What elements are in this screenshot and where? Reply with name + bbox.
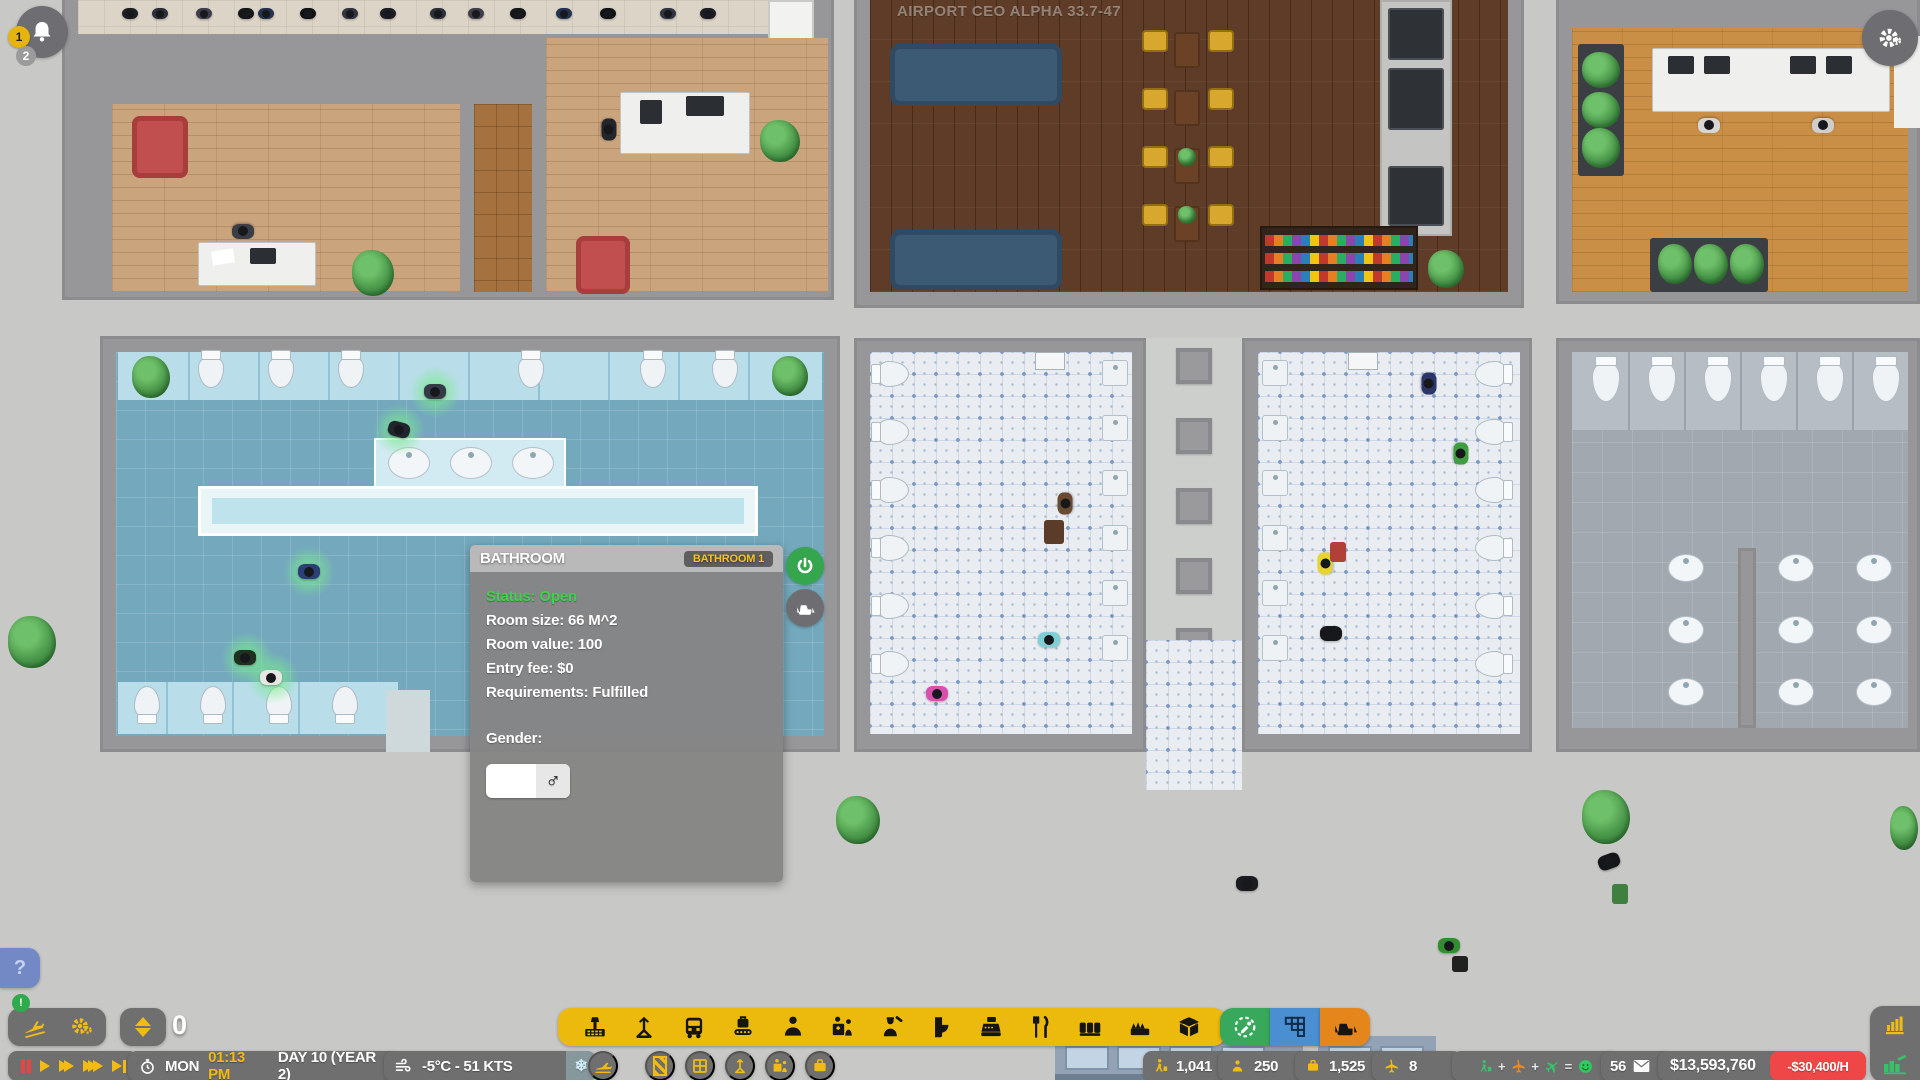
monitor: [1704, 56, 1730, 74]
room-demolish-button[interactable]: [786, 589, 824, 627]
up-arrow-icon: [135, 1017, 151, 1026]
bathroom-2-floor[interactable]: [870, 352, 1132, 734]
chair: [1208, 204, 1234, 226]
plant: [760, 120, 800, 162]
bell-icon: [30, 20, 54, 44]
person: [660, 8, 676, 19]
plant: [352, 250, 394, 296]
shops-tool[interactable]: [968, 1008, 1014, 1046]
person: [1320, 626, 1342, 641]
airport-building-tool[interactable]: [572, 1008, 618, 1046]
aircraft-count-pill[interactable]: 8: [1372, 1051, 1462, 1080]
toilet: [1475, 419, 1507, 445]
monitor: [1790, 56, 1816, 74]
build-alert-badge: !: [12, 994, 30, 1012]
chair: [1208, 146, 1234, 168]
baggage-view-button[interactable]: [805, 1051, 835, 1080]
chair: [1142, 30, 1168, 52]
panel-title: BATHROOM: [480, 550, 565, 567]
plant: [8, 616, 56, 668]
sink: [1668, 554, 1704, 582]
checkin-view-button[interactable]: [765, 1051, 795, 1080]
sink: [1262, 360, 1288, 386]
gender-select-value: [486, 764, 536, 798]
equals-sign: =: [1565, 1059, 1572, 1074]
trough-water: [212, 498, 744, 524]
stall-divider: [232, 682, 234, 734]
bus-transit-tool[interactable]: [671, 1008, 717, 1046]
plant: [1178, 206, 1196, 224]
plant: [1582, 52, 1620, 88]
pillar: [1176, 348, 1212, 384]
pillar: [1176, 418, 1212, 454]
monitor: [640, 100, 662, 124]
food-tool[interactable]: [1018, 1008, 1064, 1046]
kitchen-machine: [1388, 166, 1444, 226]
person: [510, 8, 526, 19]
fast-button[interactable]: [59, 1060, 74, 1072]
baggage-handling-tool[interactable]: [720, 1008, 766, 1046]
pillar: [1176, 558, 1212, 594]
stall-wall: [1738, 548, 1756, 728]
help-button[interactable]: ?: [0, 948, 40, 988]
stall-divider: [1628, 352, 1630, 430]
speed-controls: [8, 1051, 138, 1080]
requirements: Requirements: Fulfilled: [486, 681, 767, 705]
zones-view-button[interactable]: [645, 1051, 675, 1080]
plant: [132, 356, 170, 398]
plant: [1428, 250, 1464, 288]
sink: [1102, 360, 1128, 386]
sink: [1262, 525, 1288, 551]
airport-stats-icon: [1882, 1051, 1908, 1075]
luggage: [1452, 956, 1468, 972]
sink: [1102, 525, 1128, 551]
power-icon: [795, 556, 815, 576]
security-tool[interactable]: [869, 1008, 915, 1046]
gears-icon: [70, 1015, 94, 1039]
demolish-button[interactable]: [1320, 1008, 1370, 1046]
person: [424, 384, 446, 399]
person: [298, 564, 320, 579]
sink: [1102, 635, 1128, 661]
sink: [1102, 580, 1128, 606]
bar-chart-icon: [1883, 1013, 1907, 1037]
sink: [1856, 616, 1892, 644]
sink: [1668, 616, 1704, 644]
stall-divider: [188, 352, 190, 400]
person: [260, 670, 282, 685]
chair: [1142, 204, 1168, 226]
person: [926, 686, 948, 701]
luggage: [1044, 520, 1064, 544]
pause-button[interactable]: [21, 1059, 31, 1073]
version-watermark: AIRPORT CEO ALPHA 33.7-47: [897, 3, 1121, 20]
sink: [1262, 580, 1288, 606]
sink: [1778, 678, 1814, 706]
plant: [1890, 806, 1918, 850]
plant: [1730, 244, 1764, 284]
gear-icon: [1877, 25, 1903, 51]
toilet: [1475, 651, 1507, 677]
armchair: [132, 116, 188, 178]
stall-divider: [678, 352, 680, 400]
reports-pill[interactable]: [1870, 1006, 1920, 1080]
person: [152, 8, 168, 19]
hand-dryer: [1348, 352, 1378, 370]
skip-button[interactable]: [112, 1060, 126, 1073]
person: [1058, 493, 1073, 515]
down-arrow-icon: [135, 1028, 151, 1037]
check-in-desk-icon: [771, 1057, 789, 1075]
sink: [1778, 616, 1814, 644]
plant: [836, 796, 880, 844]
stall-divider: [468, 352, 470, 400]
bulldozer-icon: [1332, 1014, 1358, 1040]
person: [556, 8, 572, 19]
infrastructure-view-button[interactable]: [725, 1051, 755, 1080]
seating-tool[interactable]: [1067, 1008, 1113, 1046]
stall-divider: [1684, 352, 1686, 430]
pillar: [1176, 488, 1212, 524]
person: [380, 8, 396, 19]
luggage: [1612, 884, 1628, 904]
takeoff-plane-icon: [594, 1057, 612, 1075]
stopwatch-icon: [139, 1058, 156, 1075]
plant: [1582, 92, 1620, 128]
green-plane-icon: [1544, 1058, 1560, 1074]
male-symbol-icon: ♂: [536, 764, 570, 798]
stall-divider: [298, 682, 300, 734]
stall-divider: [748, 352, 750, 400]
mast-icon: [731, 1057, 749, 1075]
stall-divider: [1796, 352, 1798, 430]
luggage: [1330, 542, 1346, 562]
picker-icon: [1232, 1014, 1258, 1040]
person: [232, 224, 254, 239]
settings-button[interactable]: [1862, 10, 1918, 66]
clock-pill[interactable]: MON 01:13 PM DAY 10 (YEAR 2): [128, 1051, 400, 1080]
plane-icon: [1383, 1058, 1399, 1074]
stall-divider: [608, 352, 610, 400]
toilet: [134, 686, 160, 718]
plant: [1658, 244, 1692, 284]
staff-tool[interactable]: [770, 1008, 816, 1046]
clock-date: DAY 10 (YEAR 2): [278, 1049, 389, 1080]
kitchen-machine: [1388, 8, 1444, 60]
notification-badge-priority[interactable]: 1: [8, 26, 30, 48]
person: [1454, 443, 1469, 465]
happy-face-icon: [1577, 1058, 1594, 1075]
plant: [1582, 128, 1620, 168]
chair: [1208, 30, 1234, 52]
plane-icon: [21, 1015, 45, 1039]
toilet: [200, 686, 226, 718]
airport-map[interactable]: [0, 0, 1920, 1080]
stall-divider: [328, 352, 330, 400]
plant: [1582, 790, 1630, 844]
satisfaction-pill[interactable]: + + =: [1452, 1051, 1620, 1080]
room-inspect-panel: BATHROOM BATHROOM 1 Status: Open Room si…: [470, 545, 783, 882]
toilet: [1475, 593, 1507, 619]
sink: [1668, 678, 1704, 706]
person: [342, 8, 358, 19]
tiles-icon: [1282, 1014, 1308, 1040]
shelf-products: [1265, 253, 1413, 264]
weather-reading: -5°C - 51 KTS: [422, 1058, 512, 1075]
baggage-count: 1,525: [1329, 1058, 1365, 1075]
armchair: [576, 236, 630, 294]
sink: [1856, 554, 1892, 582]
person: [196, 8, 212, 19]
toilet: [1475, 361, 1507, 387]
weather-pill[interactable]: -5°C - 51 KTS ❄: [384, 1051, 596, 1080]
entry-fee: Entry fee: $0: [486, 657, 767, 681]
panel-title-bar[interactable]: BATHROOM BATHROOM 1: [470, 545, 783, 572]
weekday: MON: [165, 1058, 199, 1075]
stall-divider: [398, 352, 400, 400]
wind-icon: [394, 1056, 414, 1076]
room-status: Status: Open: [486, 585, 767, 609]
door-gap: [386, 690, 430, 752]
plant: [1694, 244, 1728, 284]
departures-button[interactable]: [588, 1051, 618, 1080]
plant: [772, 356, 808, 396]
rooms-view-button[interactable]: [685, 1051, 715, 1080]
plus-sign: +: [1531, 1059, 1538, 1074]
table: [1174, 32, 1200, 68]
table: [1174, 90, 1200, 126]
person: [300, 8, 316, 19]
monitor: [686, 96, 724, 116]
stall-divider: [1740, 352, 1742, 430]
monitor: [1668, 56, 1694, 74]
sink: [1262, 635, 1288, 661]
room-size: Room size: 66 M^2: [486, 609, 767, 633]
person: [1438, 938, 1460, 953]
plant: [1178, 148, 1196, 166]
person: [468, 8, 484, 19]
sofa: [890, 230, 1062, 290]
play-button[interactable]: [40, 1060, 50, 1072]
panel-body: Status: Open Room size: 66 M^2 Room valu…: [470, 572, 783, 882]
plus-sign: +: [1498, 1059, 1505, 1074]
floor-level-stepper[interactable]: [120, 1008, 166, 1046]
stall-divider: [166, 682, 168, 734]
kitchen-machine: [1388, 68, 1444, 130]
corridor-exit-tiles: [1146, 640, 1242, 790]
gender-select[interactable]: ♂: [486, 764, 570, 798]
finance-pill[interactable]: $13,593,760 -$30,400/H: [1658, 1051, 1866, 1080]
person: [430, 8, 446, 19]
sink: [1778, 554, 1814, 582]
sofa: [890, 44, 1062, 106]
sink: [450, 447, 492, 479]
person: [234, 650, 256, 665]
person: [1236, 876, 1258, 891]
hand-dryer: [1035, 352, 1065, 370]
flight-planner-pill[interactable]: [8, 1008, 106, 1046]
check-in-desk-tool[interactable]: [819, 1008, 865, 1046]
suitcase-icon: [811, 1057, 829, 1075]
clock-time: 01:13 PM: [208, 1049, 269, 1080]
orange-plane-icon: [1510, 1058, 1526, 1074]
green-passenger-icon: [1478, 1059, 1493, 1074]
office-corridor[interactable]: [474, 104, 532, 292]
person: [1698, 118, 1720, 133]
envelope-icon: [1633, 1059, 1650, 1073]
floor-tiles-button[interactable]: [1270, 1008, 1320, 1046]
hourly-rate-badge: -$30,400/H: [1770, 1051, 1866, 1080]
chair: [1142, 146, 1168, 168]
person: [258, 8, 274, 19]
sink: [1102, 415, 1128, 441]
kiosk-window: [1065, 1046, 1109, 1070]
notification-badge-count[interactable]: 2: [16, 46, 36, 66]
delivery-box-tool[interactable]: [1166, 1008, 1212, 1046]
sink: [1102, 470, 1128, 496]
toilet: [1475, 535, 1507, 561]
person: [1812, 118, 1834, 133]
panel-spacer: [486, 798, 767, 866]
chair: [1208, 88, 1234, 110]
bathroom-tool[interactable]: [918, 1008, 964, 1046]
toilet: [1475, 477, 1507, 503]
sink: [1856, 678, 1892, 706]
shelf-products: [1265, 235, 1413, 246]
person: [1596, 851, 1622, 873]
staff-count: 250: [1254, 1058, 1278, 1075]
balance-value: $13,593,760: [1658, 1057, 1768, 1075]
sink: [1262, 470, 1288, 496]
person: [238, 8, 254, 19]
room-name-badge: BATHROOM 1: [684, 551, 773, 567]
window-grid-icon: [691, 1057, 709, 1075]
person-icon: [1230, 1059, 1245, 1074]
suitcase-icon: [1305, 1058, 1321, 1074]
room-power-button[interactable]: [786, 547, 824, 585]
person: [1038, 632, 1060, 647]
sink: [512, 447, 554, 479]
monitor: [250, 248, 276, 264]
bulldozer-icon: [794, 597, 816, 619]
chair: [1142, 88, 1168, 110]
walking-passenger-icon: [1153, 1058, 1169, 1074]
aircraft-count: 8: [1409, 1058, 1417, 1075]
plants-tool[interactable]: [1117, 1008, 1163, 1046]
stall-divider: [1852, 352, 1854, 430]
mail-count: 56: [1610, 1058, 1626, 1075]
person: [122, 8, 138, 19]
person: [602, 119, 617, 141]
passenger-count: 1,041: [1176, 1058, 1212, 1075]
stall-divider: [258, 352, 260, 400]
shelf-products: [1265, 271, 1413, 282]
mast-tool[interactable]: [621, 1008, 667, 1046]
stripes-icon: [653, 1056, 667, 1076]
zone-picker-button[interactable]: [1220, 1008, 1270, 1046]
gender-label: Gender:: [486, 727, 767, 751]
faster-button[interactable]: [83, 1060, 103, 1072]
person: [600, 8, 616, 19]
person: [1422, 373, 1437, 395]
toilet: [332, 686, 358, 718]
person: [700, 8, 716, 19]
build-toolbar: [558, 1008, 1226, 1046]
room-value: Room value: 100: [486, 633, 767, 657]
monitor: [1826, 56, 1852, 74]
sink: [1262, 415, 1288, 441]
shop-shelf: [1260, 226, 1418, 290]
floor-level-value: 0: [172, 1010, 187, 1041]
